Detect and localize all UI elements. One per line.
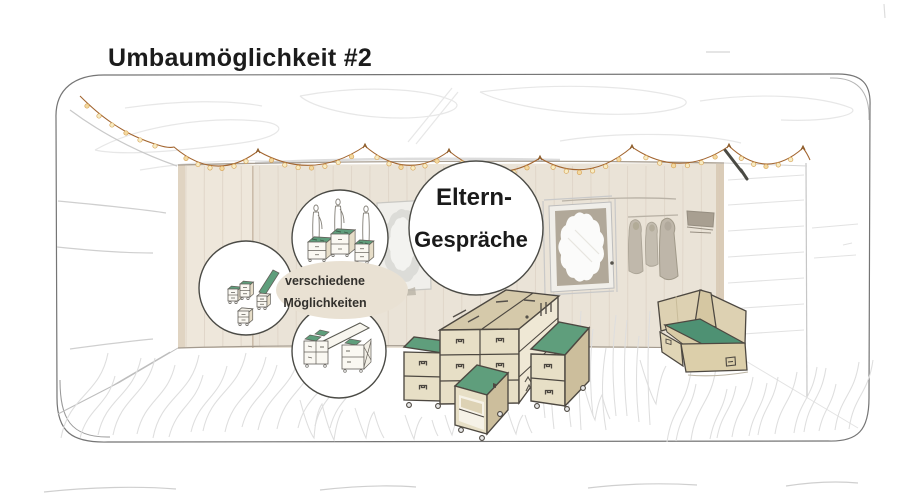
svg-text:Eltern-: Eltern- [436,184,512,211]
svg-text:Gespräche: Gespräche [414,227,528,252]
svg-text:Möglichkeiten: Möglichkeiten [283,296,366,310]
svg-text:verschiedene: verschiedene [285,274,365,288]
svg-text:Umbaumöglichkeit #2: Umbaumöglichkeit #2 [108,44,372,72]
